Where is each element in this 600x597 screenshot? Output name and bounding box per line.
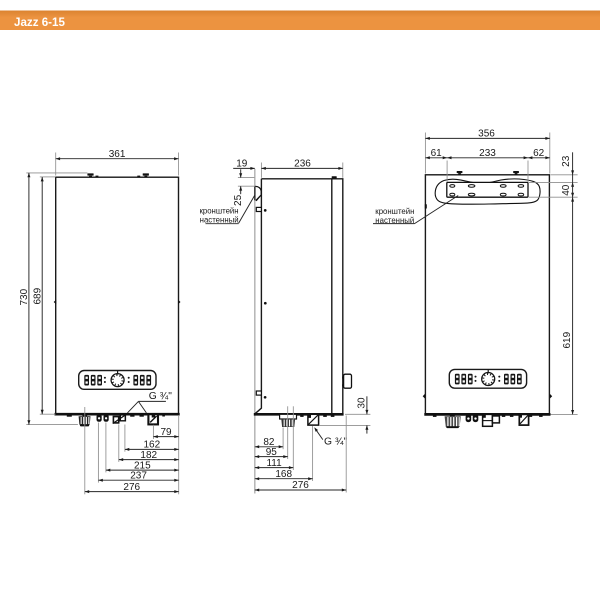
svg-text:236: 236 (294, 159, 311, 170)
svg-text:настенный: настенный (200, 215, 239, 224)
svg-text:237: 237 (130, 470, 147, 481)
svg-text:кронштейн: кронштейн (375, 207, 414, 216)
svg-text:23: 23 (561, 155, 572, 167)
svg-text:кронштейн: кронштейн (199, 207, 238, 216)
svg-text:182: 182 (140, 450, 157, 461)
svg-text:79: 79 (160, 427, 172, 438)
svg-text:25: 25 (233, 194, 244, 206)
svg-text:Jazz 6-15: Jazz 6-15 (14, 16, 65, 29)
svg-text:95: 95 (266, 447, 278, 458)
svg-text:61: 61 (431, 148, 443, 159)
svg-text:356: 356 (478, 129, 495, 140)
svg-text:40: 40 (561, 184, 572, 196)
svg-text:619: 619 (562, 331, 573, 348)
svg-text:689: 689 (33, 287, 44, 304)
svg-text:276: 276 (123, 482, 140, 493)
svg-text:19: 19 (236, 158, 248, 169)
svg-text:G ¾": G ¾" (324, 437, 347, 448)
svg-text:62: 62 (533, 148, 545, 159)
svg-text:G ¾": G ¾" (149, 391, 172, 402)
svg-text:361: 361 (109, 149, 126, 160)
svg-text:111: 111 (266, 458, 282, 469)
svg-text:168: 168 (275, 469, 292, 480)
svg-text:730: 730 (19, 288, 30, 305)
svg-text:30: 30 (357, 397, 368, 409)
svg-text:276: 276 (292, 480, 309, 491)
svg-text:233: 233 (479, 148, 496, 159)
